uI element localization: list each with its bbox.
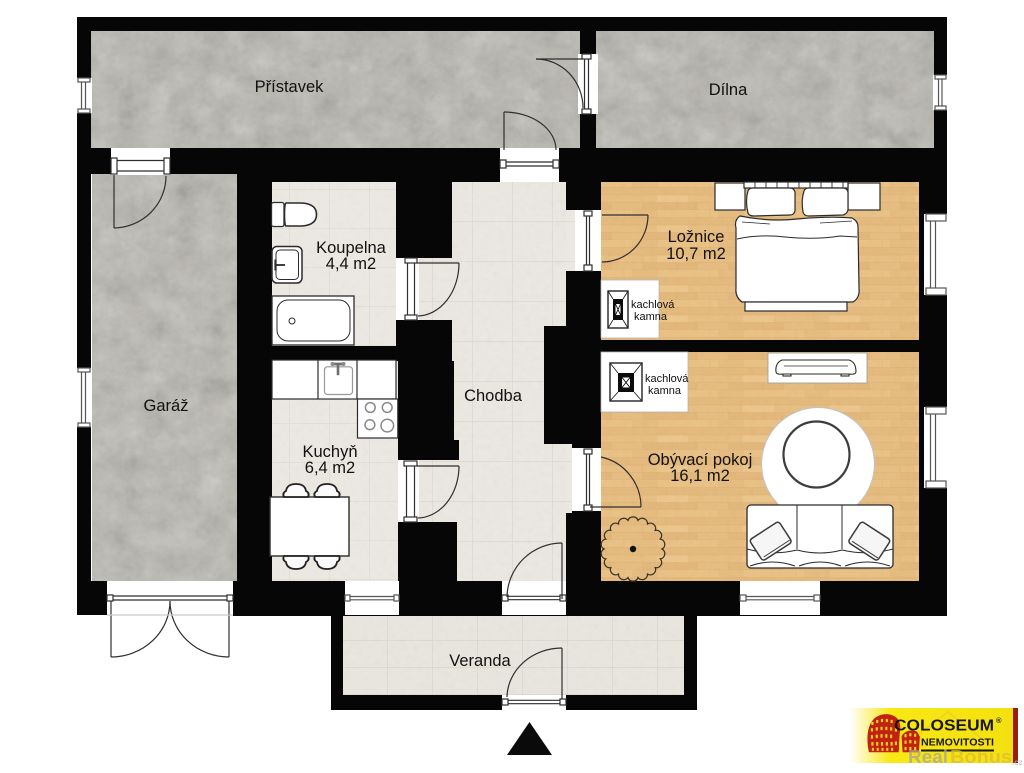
svg-text:4,4 m2: 4,4 m2 bbox=[326, 255, 376, 273]
svg-text:Dílna: Dílna bbox=[709, 81, 748, 99]
svg-text:10,7 m2: 10,7 m2 bbox=[666, 245, 726, 263]
svg-text:kamna: kamna bbox=[648, 385, 682, 397]
svg-text:kamna: kamna bbox=[634, 311, 668, 323]
svg-text:6,4 m2: 6,4 m2 bbox=[305, 459, 355, 477]
svg-text:Přístavek: Přístavek bbox=[255, 78, 325, 96]
svg-text:®: ® bbox=[996, 716, 1002, 725]
svg-text:COLOSEUM: COLOSEUM bbox=[894, 718, 994, 735]
svg-text:kachlová: kachlová bbox=[631, 299, 675, 311]
svg-text:16,1 m2: 16,1 m2 bbox=[670, 467, 730, 485]
svg-text:Veranda: Veranda bbox=[449, 652, 511, 670]
svg-text:.cz: .cz bbox=[1012, 758, 1023, 767]
svg-text:Real: Real bbox=[908, 747, 948, 767]
svg-text:Chodba: Chodba bbox=[464, 387, 523, 405]
svg-text:Ložnice: Ložnice bbox=[668, 228, 725, 246]
svg-text:Bonus: Bonus bbox=[950, 747, 1012, 767]
svg-text:Garáž: Garáž bbox=[144, 397, 189, 415]
svg-text:kachlová: kachlová bbox=[645, 373, 689, 385]
